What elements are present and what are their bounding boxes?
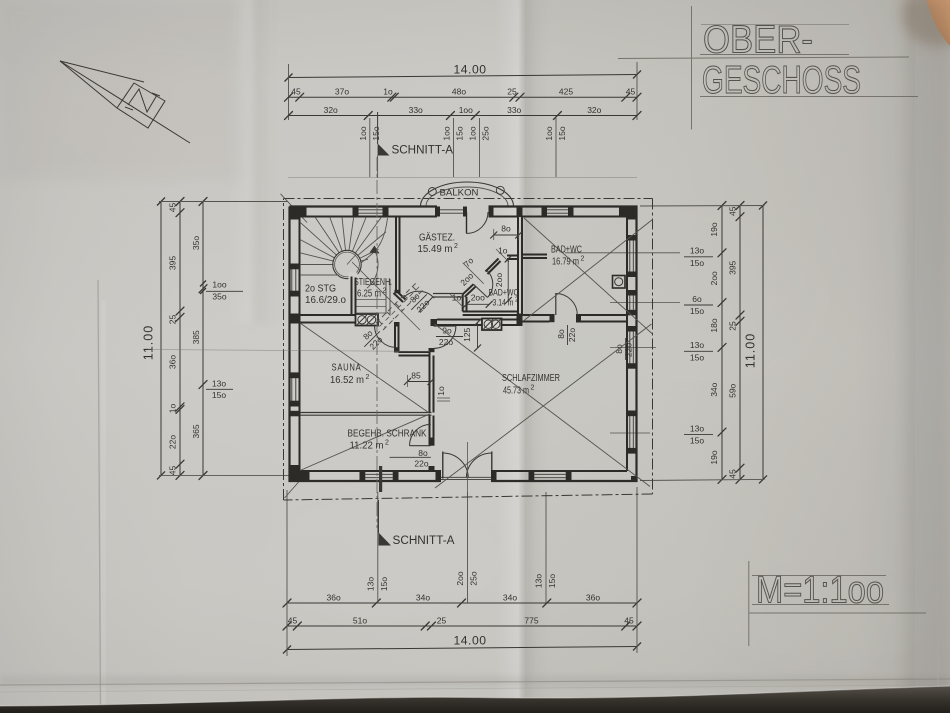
svg-text:365: 365	[191, 424, 201, 438]
svg-text:6o: 6o	[692, 294, 702, 304]
svg-text:15.49 m: 15.49 m	[418, 243, 453, 255]
svg-text:BAD+WC: BAD+WC	[551, 245, 582, 256]
svg-text:395: 395	[728, 260, 738, 274]
svg-text:2: 2	[383, 288, 387, 295]
svg-text:36o: 36o	[586, 593, 600, 603]
svg-text:15o: 15o	[455, 126, 465, 140]
svg-text:2oo: 2oo	[494, 273, 504, 287]
svg-text:34o: 34o	[416, 593, 430, 603]
svg-text:25o: 25o	[481, 126, 491, 140]
svg-text:GESCHOSS: GESCHOSS	[702, 59, 861, 102]
svg-text:37o: 37o	[335, 87, 349, 97]
svg-text:11.00: 11.00	[744, 333, 758, 368]
svg-text:45: 45	[626, 87, 636, 97]
svg-text:1o: 1o	[436, 386, 446, 396]
svg-text:15o: 15o	[379, 577, 389, 591]
svg-text:32o: 32o	[324, 105, 338, 115]
svg-text:3.14 m: 3.14 m	[493, 298, 514, 309]
svg-text:15o: 15o	[371, 126, 381, 140]
svg-text:14.00: 14.00	[454, 636, 487, 648]
svg-text:51o: 51o	[353, 616, 367, 626]
svg-text:1oo: 1oo	[459, 105, 473, 115]
svg-text:15o: 15o	[690, 436, 704, 446]
svg-text:SCHNITT-A: SCHNITT-A	[393, 535, 455, 547]
svg-text:13o: 13o	[365, 577, 375, 591]
svg-text:35o: 35o	[212, 292, 226, 302]
svg-text:85: 85	[411, 371, 421, 381]
svg-text:15o: 15o	[547, 574, 557, 588]
svg-text:1oo: 1oo	[544, 126, 554, 140]
svg-text:45: 45	[728, 206, 738, 216]
svg-text:36o: 36o	[327, 593, 341, 603]
svg-text:11.22 m: 11.22 m	[350, 440, 384, 452]
svg-text:18o: 18o	[709, 318, 719, 332]
svg-text:33o: 33o	[409, 105, 423, 115]
svg-text:25: 25	[437, 616, 447, 626]
svg-text:25: 25	[507, 87, 517, 97]
svg-text:45: 45	[291, 87, 301, 97]
svg-text:6.25 m: 6.25 m	[357, 289, 381, 300]
svg-text:45.73 m: 45.73 m	[503, 385, 529, 397]
svg-text:13o: 13o	[690, 340, 704, 350]
svg-text:SCHLAFZIMMER: SCHLAFZIMMER	[502, 372, 560, 384]
svg-text:SAUNA: SAUNA	[332, 362, 362, 374]
svg-text:15o: 15o	[690, 306, 704, 316]
svg-text:22o: 22o	[567, 328, 577, 342]
svg-text:425: 425	[559, 87, 573, 97]
svg-text:2: 2	[454, 243, 458, 250]
svg-text:33o: 33o	[507, 105, 521, 115]
svg-text:22o: 22o	[624, 343, 634, 357]
svg-text:GÄSTEZ.: GÄSTEZ.	[419, 232, 455, 244]
svg-text:2: 2	[581, 256, 585, 263]
svg-text:BALKON: BALKON	[440, 188, 479, 199]
svg-text:SCHNITT-A: SCHNITT-A	[392, 145, 454, 157]
svg-text:125: 125	[462, 327, 472, 341]
svg-text:1oo: 1oo	[212, 280, 226, 290]
svg-text:1oo: 1oo	[358, 126, 368, 140]
svg-text:25o: 25o	[469, 571, 479, 585]
svg-text:15o: 15o	[690, 258, 704, 268]
svg-text:34o: 34o	[503, 593, 517, 603]
svg-text:15o: 15o	[690, 352, 704, 362]
svg-text:2o STG: 2o STG	[305, 284, 336, 295]
svg-text:59o: 59o	[728, 383, 738, 397]
svg-text:2oo: 2oo	[709, 271, 719, 285]
svg-text:8o: 8o	[418, 448, 428, 458]
svg-text:45: 45	[288, 616, 298, 626]
svg-text:1oo: 1oo	[468, 126, 478, 140]
svg-text:22o: 22o	[414, 459, 428, 469]
svg-text:2oo: 2oo	[471, 293, 485, 303]
svg-text:32o: 32o	[587, 105, 601, 115]
svg-text:8o: 8o	[556, 329, 566, 339]
svg-text:22o: 22o	[439, 337, 453, 347]
svg-text:19o: 19o	[709, 222, 719, 236]
svg-text:STIEGENH.: STIEGENH.	[354, 277, 392, 288]
svg-text:1o: 1o	[168, 404, 178, 414]
svg-text:16.79 m: 16.79 m	[552, 257, 579, 268]
svg-text:1oo: 1oo	[442, 126, 452, 140]
svg-text:13o: 13o	[212, 379, 226, 389]
svg-text:385: 385	[191, 330, 201, 344]
svg-text:45: 45	[624, 616, 634, 626]
svg-text:13o: 13o	[534, 574, 544, 588]
svg-text:22o: 22o	[168, 435, 178, 449]
svg-text:25: 25	[168, 315, 178, 325]
svg-text:OBER-: OBER-	[703, 19, 813, 62]
svg-text:11.00: 11.00	[142, 325, 156, 360]
svg-text:35o: 35o	[191, 236, 201, 250]
svg-text:13o: 13o	[690, 423, 704, 433]
svg-text:775: 775	[524, 616, 538, 626]
svg-text:45: 45	[728, 469, 738, 479]
svg-text:45: 45	[168, 466, 178, 476]
svg-text:16.52 m: 16.52 m	[330, 374, 364, 386]
svg-text:25: 25	[728, 321, 738, 331]
svg-text:13o: 13o	[690, 246, 704, 256]
svg-text:2oo: 2oo	[455, 571, 465, 585]
svg-text:19o: 19o	[709, 450, 719, 464]
svg-text:M=1:1oo: M=1:1oo	[756, 570, 884, 612]
svg-text:2: 2	[515, 297, 519, 304]
svg-text:16.6/29.o: 16.6/29.o	[305, 295, 346, 306]
svg-text:BEGEHB. SCHRANK: BEGEHB. SCHRANK	[348, 428, 427, 440]
svg-text:2: 2	[385, 440, 389, 447]
svg-text:14.00: 14.00	[454, 65, 487, 77]
svg-text:34o: 34o	[709, 382, 719, 396]
svg-text:1o: 1o	[383, 87, 393, 97]
svg-text:36o: 36o	[168, 355, 178, 369]
svg-text:15o: 15o	[557, 126, 567, 140]
svg-text:1o: 1o	[498, 246, 508, 256]
svg-text:395: 395	[168, 256, 178, 270]
svg-text:2: 2	[366, 374, 370, 381]
svg-text:45: 45	[168, 203, 178, 213]
svg-text:48o: 48o	[452, 87, 466, 97]
svg-text:15o: 15o	[212, 390, 226, 400]
svg-text:8o: 8o	[501, 224, 511, 234]
svg-text:2: 2	[531, 385, 535, 392]
